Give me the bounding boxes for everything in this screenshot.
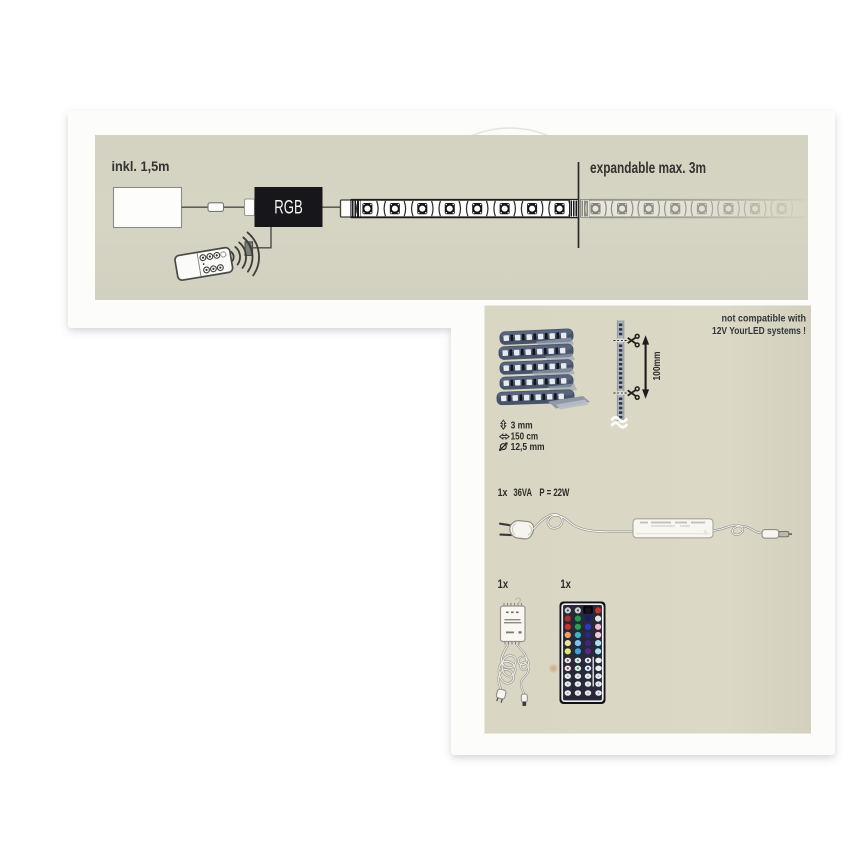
svg-text:1x: 1x <box>498 487 508 499</box>
svg-text:not compatible with: not compatible with <box>722 313 807 325</box>
svg-text:12V YourLED systems !: 12V YourLED systems ! <box>712 325 806 337</box>
svg-text:1x: 1x <box>498 577 509 591</box>
svg-text:expandable max. 3m: expandable max. 3m <box>590 160 706 177</box>
svg-text:inkl. 1,5m: inkl. 1,5m <box>112 158 170 174</box>
svg-text:RGB: RGB <box>274 198 303 219</box>
svg-text:P = 22W: P = 22W <box>539 487 569 499</box>
svg-text:1x: 1x <box>560 577 571 591</box>
svg-text:100mm: 100mm <box>651 352 663 381</box>
svg-text:12,5 mm: 12,5 mm <box>511 441 545 453</box>
svg-text:36VA: 36VA <box>513 487 532 499</box>
